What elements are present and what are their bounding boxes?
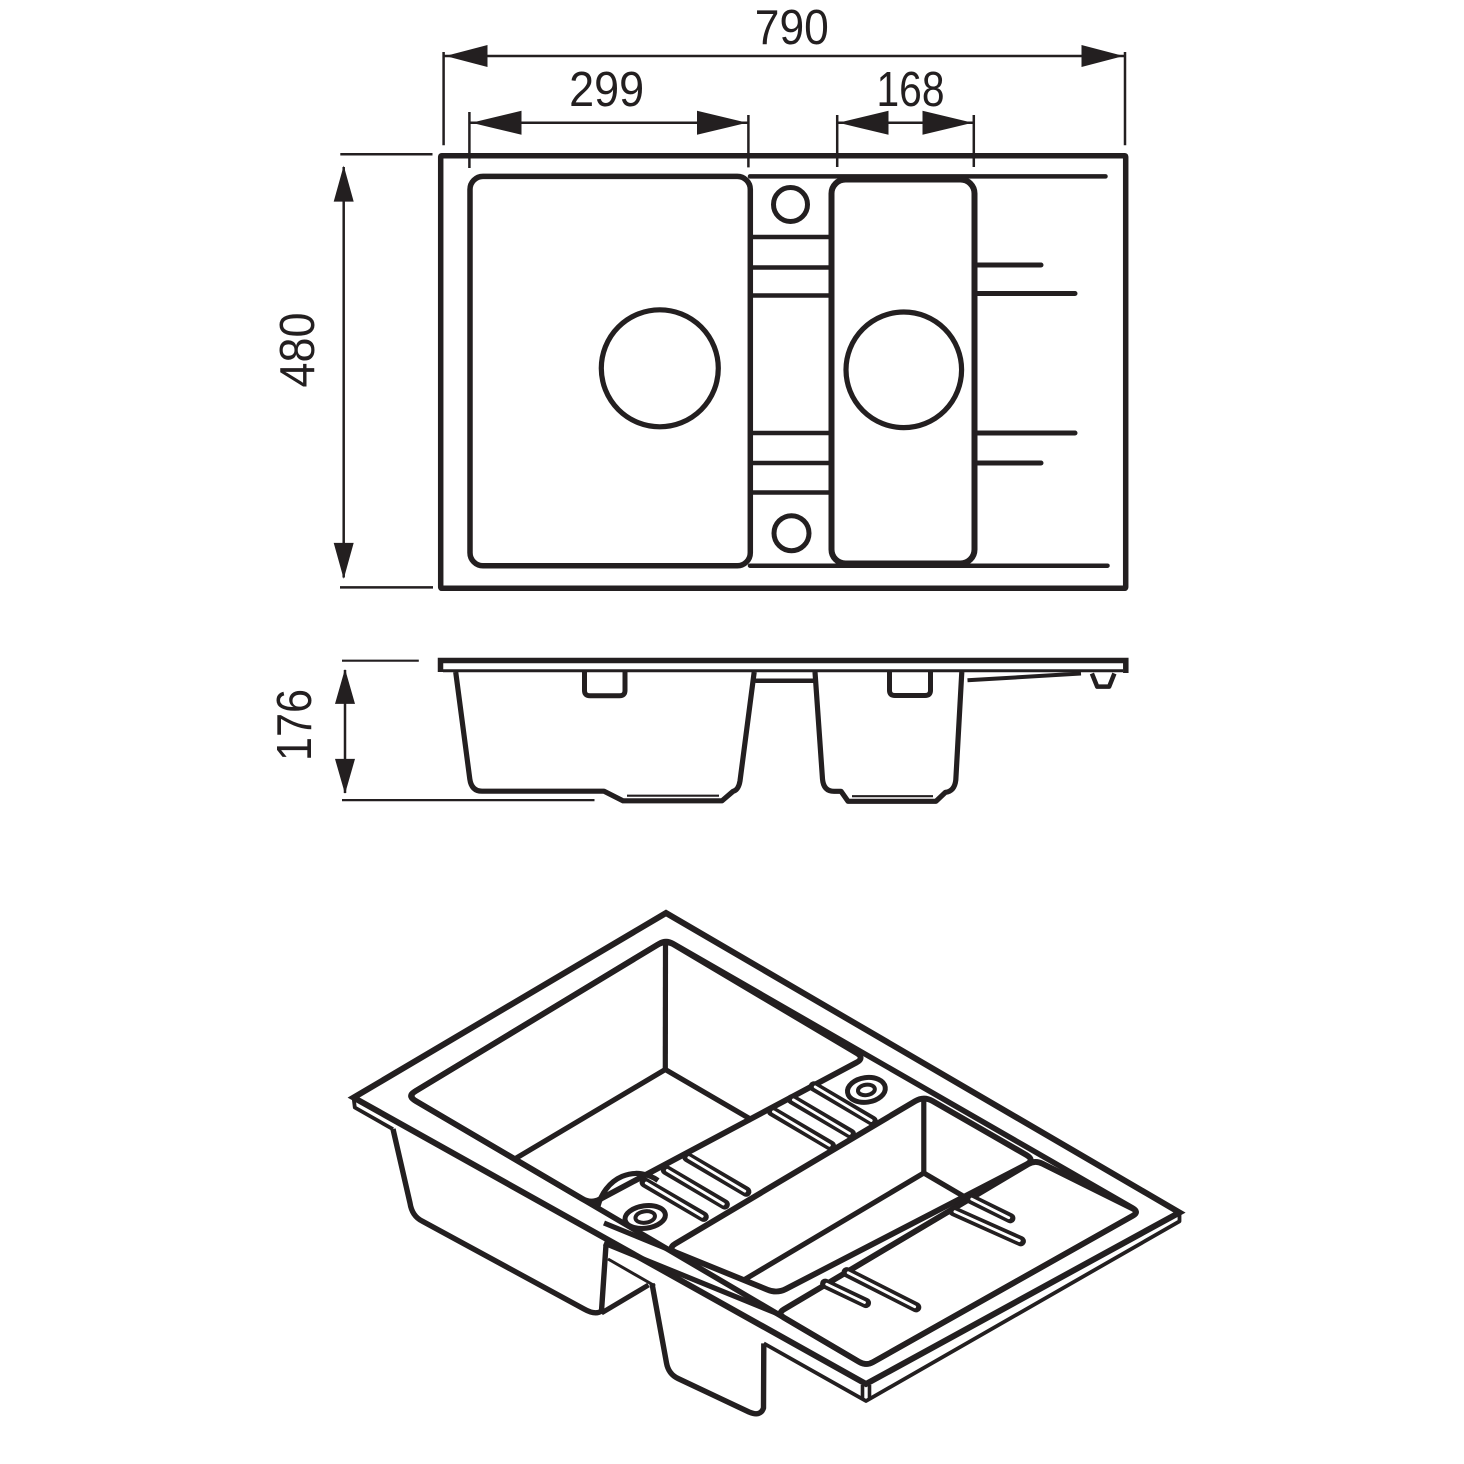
svg-text:168: 168	[877, 62, 945, 117]
svg-text:480: 480	[270, 313, 325, 388]
svg-text:790: 790	[755, 0, 829, 55]
svg-text:176: 176	[267, 689, 322, 761]
svg-text:299: 299	[569, 62, 644, 117]
